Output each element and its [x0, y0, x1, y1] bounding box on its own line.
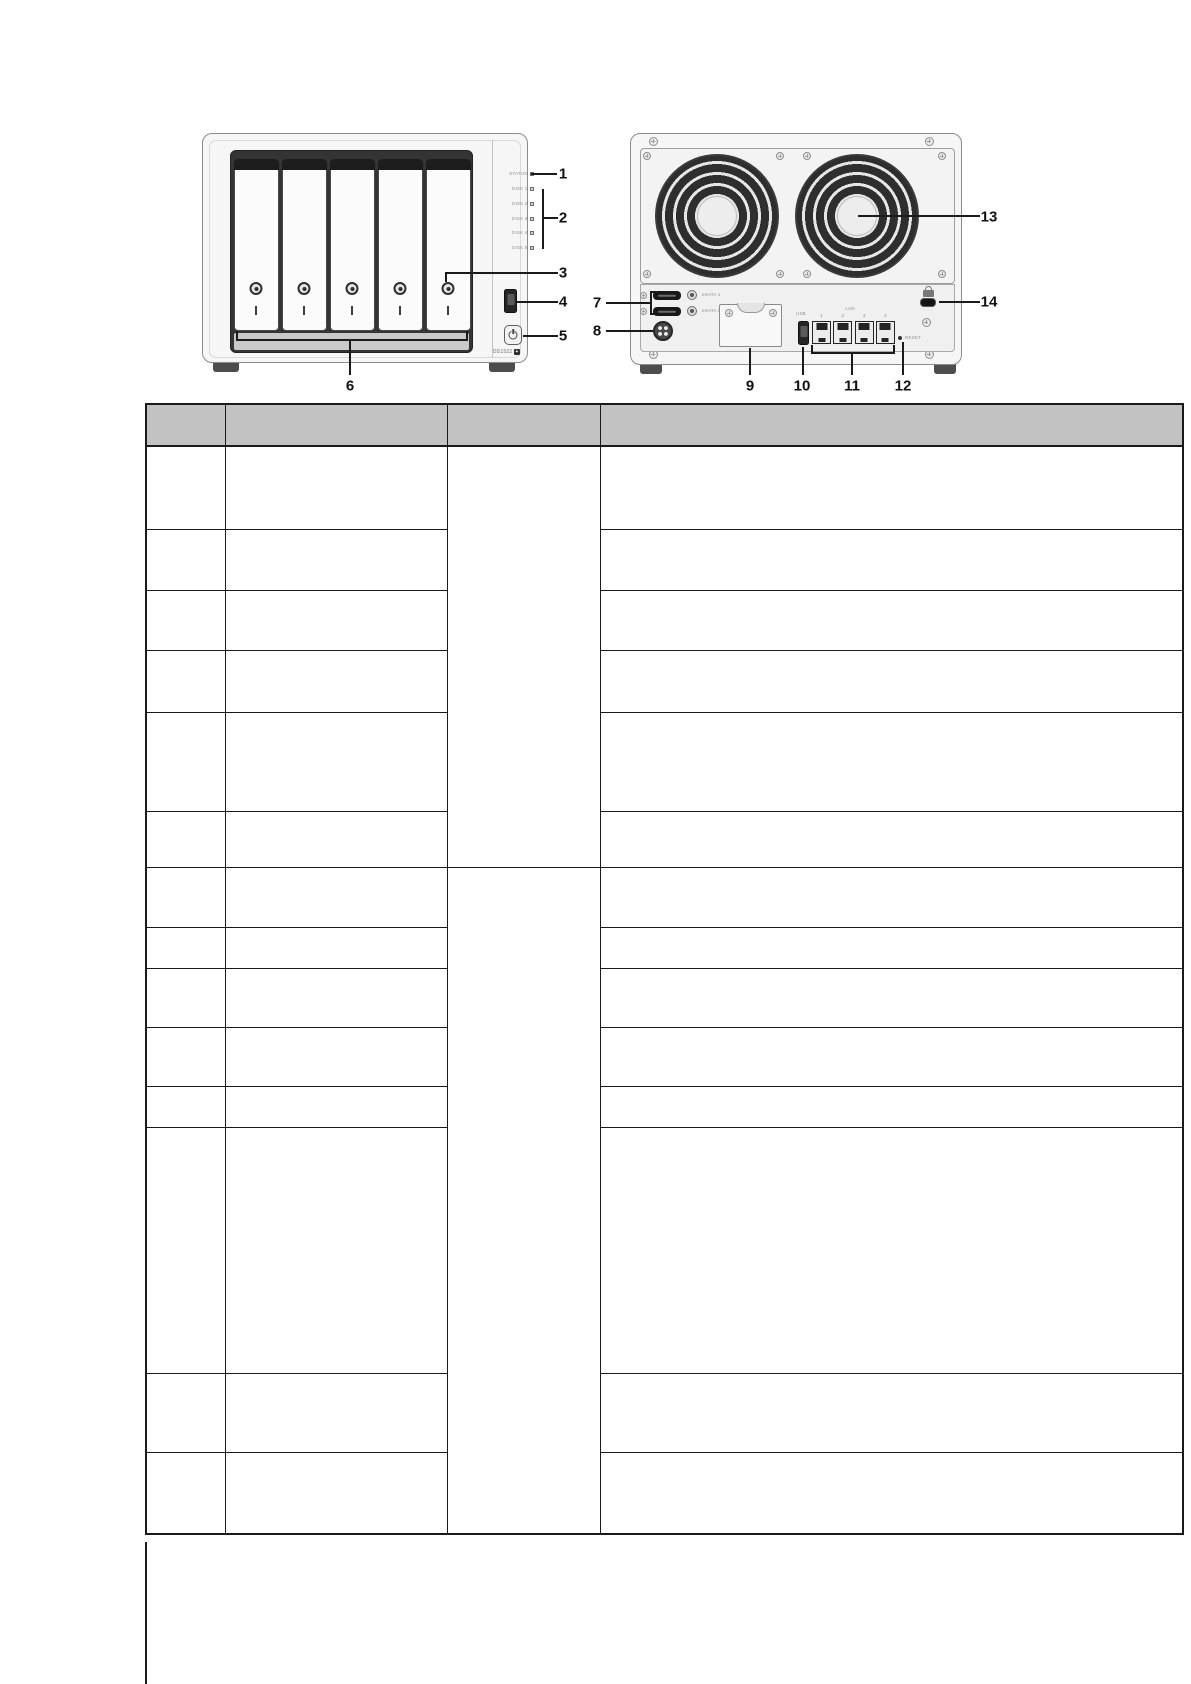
drive-tray [426, 159, 471, 331]
callout-13-leader [858, 215, 980, 217]
esata-nut [687, 290, 697, 300]
table-cell [146, 1027, 225, 1086]
tray-lock-keyhole [398, 287, 402, 291]
model-text: DS1522 [493, 350, 512, 355]
front-foot-right [489, 362, 515, 372]
disk4-led-row: DISK 4 [494, 230, 534, 236]
spec-table-header [146, 404, 1183, 446]
callout-label-2: 2 [559, 211, 567, 226]
kensington-lock-body [923, 290, 934, 297]
screw-icon [776, 152, 784, 160]
tray-led-slot [255, 306, 257, 315]
callout-label-14: 14 [981, 295, 998, 310]
led-icon [530, 246, 535, 251]
disk1-led-row: DISK 1 [494, 186, 534, 192]
table-cell [225, 927, 447, 968]
table-row [146, 590, 1183, 650]
table-cell [225, 867, 447, 927]
screw-icon [776, 270, 784, 278]
esata-port-2 [653, 307, 681, 316]
screw-icon [803, 270, 811, 278]
usb-tongue [507, 294, 514, 305]
lan-port-number: 3 [855, 314, 874, 319]
tray-lock-keyhole [254, 287, 258, 291]
callout-14-leader [939, 301, 980, 303]
callout-3-leader [445, 272, 558, 274]
table-cell [146, 446, 225, 529]
table-row [146, 1452, 1183, 1534]
led-icon [530, 217, 535, 222]
screw-icon [725, 309, 733, 317]
callout-label-10: 10 [794, 379, 811, 394]
tray-handle [330, 159, 375, 170]
esata-nut [687, 306, 697, 316]
front-foot-left [213, 362, 239, 372]
usb-tongue [800, 326, 807, 337]
callout-12-leader [902, 342, 904, 375]
table-cell [600, 590, 1183, 650]
led-label: DISK 1 [512, 187, 527, 192]
table-row [146, 811, 1183, 867]
tray-lock-icon [346, 282, 359, 295]
table-cell [600, 446, 1183, 529]
callout-4-leader [517, 301, 558, 303]
kensington-slot [920, 298, 936, 307]
lan-group-label: LAN [840, 307, 860, 312]
callout-7-bracket-end [652, 313, 656, 315]
table-cell [225, 1027, 447, 1086]
tray-lock-keyhole [446, 287, 450, 291]
front-usb-port [504, 289, 517, 313]
tray-handle [426, 159, 471, 170]
callout-label-8: 8 [593, 324, 601, 339]
led-label: STATUS [509, 172, 527, 177]
esata-slit [658, 294, 676, 297]
tray-led-slot [303, 306, 305, 315]
callout-label-3: 3 [559, 266, 567, 281]
power-button [504, 325, 522, 345]
table-cell [225, 529, 447, 590]
esata1-label: eSATA 1 [702, 293, 721, 298]
led-icon [530, 231, 535, 236]
back-usb-port [798, 321, 809, 345]
led-label: DISK 4 [512, 231, 527, 236]
power-icon-bar [512, 329, 514, 334]
tray-handle [378, 159, 423, 170]
table-header-cell [225, 404, 447, 446]
callout-2-leader [544, 217, 558, 219]
drive-tray [282, 159, 327, 331]
table-cell [600, 811, 1183, 867]
callout-label-7: 7 [593, 296, 601, 311]
lan-port-number: 4 [876, 314, 895, 319]
tray-led-slot [447, 306, 449, 315]
table-cell [600, 712, 1183, 811]
table-cell [146, 529, 225, 590]
screw-icon [769, 309, 777, 317]
callout-1-leader [531, 173, 557, 175]
table-cell [146, 1127, 225, 1373]
table-cell [146, 1373, 225, 1452]
table-cell [225, 1373, 447, 1452]
led-label: DISK 2 [512, 202, 527, 207]
table-cell-merged [447, 446, 600, 867]
table-cell [225, 650, 447, 712]
disk5-led-row: DISK 5 [494, 245, 534, 251]
callout-label-4: 4 [559, 295, 567, 310]
tray-lock-icon [394, 282, 407, 295]
callout-2-bracket [542, 189, 544, 249]
next-section-left-rule [145, 1542, 147, 1684]
table-cell [146, 1452, 225, 1534]
tray-lock-keyhole [302, 287, 306, 291]
table-cell [600, 867, 1183, 927]
callout-10-leader [802, 347, 804, 375]
esata-port-1 [653, 291, 681, 300]
table-cell [600, 1373, 1183, 1452]
reset-label: RESET [905, 336, 921, 341]
model-label: DS1522 + [493, 349, 520, 355]
esata-nut-dot [690, 293, 694, 297]
table-row [146, 927, 1183, 968]
lan-port-1 [812, 321, 831, 344]
callout-5-leader [523, 335, 558, 337]
table-cell [600, 650, 1183, 712]
callout-6-bracket [236, 339, 468, 341]
tray-led-slot [399, 306, 401, 315]
table-cell [146, 1086, 225, 1127]
disk2-led-row: DISK 2 [494, 201, 534, 207]
lan-pins [837, 323, 848, 330]
screw-icon [922, 318, 931, 327]
table-cell [225, 811, 447, 867]
table-row [146, 650, 1183, 712]
spec-table [145, 403, 1184, 1535]
fan-hub [697, 196, 737, 236]
lan-port-number: 2 [833, 314, 852, 319]
tray-handle [234, 159, 279, 170]
table-cell [146, 590, 225, 650]
bay-bottom-strip [234, 333, 469, 350]
model-plus-badge: + [514, 349, 520, 355]
lan-port-3 [855, 321, 874, 344]
lan-nub [861, 338, 868, 342]
callout-7-bracket-end [652, 291, 656, 293]
screw-icon [938, 270, 946, 278]
screw-icon [938, 152, 946, 160]
callout-6-stub [349, 341, 351, 375]
table-cell [600, 529, 1183, 590]
table-cell [146, 968, 225, 1027]
screw-icon [649, 137, 658, 146]
tray-lock-icon [250, 282, 263, 295]
table-row [146, 1027, 1183, 1086]
table-cell [600, 1027, 1183, 1086]
callout-label-13: 13 [981, 210, 998, 225]
table-cell [600, 1452, 1183, 1534]
table-cell [225, 1452, 447, 1534]
table-row [146, 1086, 1183, 1127]
screw-icon [803, 152, 811, 160]
led-label: DISK 3 [512, 217, 527, 222]
esata-nut-dot [690, 309, 694, 313]
back-foot-right [934, 364, 956, 374]
callout-6-bracket-end [236, 331, 238, 339]
screw-icon [925, 137, 934, 146]
lan-port-2 [833, 321, 852, 344]
table-cell [146, 712, 225, 811]
table-header-cell [447, 404, 600, 446]
table-cell [146, 867, 225, 927]
callout-7-bracket [650, 291, 652, 315]
table-cell [600, 927, 1183, 968]
callout-6-bracket-end [466, 331, 468, 339]
lan-pins [859, 323, 870, 330]
spec-table-body [146, 446, 1183, 1534]
table-row [146, 712, 1183, 811]
drive-tray [234, 159, 279, 331]
tray-lock-keyhole [350, 287, 354, 291]
table-cell [225, 712, 447, 811]
callout-label-1: 1 [559, 167, 567, 182]
drive-bay-area [230, 150, 473, 353]
tray-handle [282, 159, 327, 170]
callout-label-9: 9 [746, 379, 754, 394]
drive-tray [330, 159, 375, 331]
table-cell [225, 446, 447, 529]
lan-pins [816, 323, 827, 330]
table-cell [600, 968, 1183, 1027]
disk3-led-row: DISK 3 [494, 216, 534, 222]
lan-nub [839, 338, 846, 342]
table-row [146, 867, 1183, 927]
fan-icon [655, 154, 779, 278]
led-icon [530, 202, 535, 207]
lan-pins [880, 323, 891, 330]
manual-page: STATUS DISK 1 DISK 2 DISK 3 DISK 4 DISK … [0, 0, 1191, 1684]
callout-label-12: 12 [895, 379, 912, 394]
status-led-row: STATUS [494, 171, 534, 177]
screw-icon [640, 308, 647, 315]
table-cell [600, 1086, 1183, 1127]
callout-11-bracket [811, 352, 895, 354]
drive-tray [378, 159, 423, 331]
callout-9-leader [749, 348, 751, 375]
callout-7-leader [606, 302, 652, 304]
table-cell [225, 1086, 447, 1127]
screw-icon [643, 270, 651, 278]
led-icon [530, 187, 535, 192]
lan-port-number: 1 [812, 314, 831, 319]
table-cell-merged [447, 867, 600, 1534]
screw-icon [640, 292, 647, 299]
table-cell [146, 650, 225, 712]
screw-icon [643, 152, 651, 160]
table-header-cell [600, 404, 1183, 446]
table-row [146, 1127, 1183, 1373]
callout-label-11: 11 [844, 379, 860, 394]
tray-led-slot [351, 306, 353, 315]
tray-lock-icon [442, 282, 455, 295]
lan-nub [818, 338, 825, 342]
table-cell [225, 968, 447, 1027]
table-cell [146, 811, 225, 867]
led-label: DISK 5 [512, 246, 527, 251]
table-row [146, 446, 1183, 529]
callout-8-leader [606, 330, 653, 332]
table-cell [600, 1127, 1183, 1373]
table-row [146, 529, 1183, 590]
table-cell [225, 590, 447, 650]
front-panel-divider [492, 140, 493, 358]
power-inlet-port [653, 321, 673, 341]
callout-label-5: 5 [559, 329, 567, 344]
lan-nub [882, 338, 889, 342]
table-header-cell [146, 404, 225, 446]
reset-button [898, 336, 902, 340]
esata2-label: eSATA 2 [702, 309, 721, 314]
table-row [146, 1373, 1183, 1452]
esata-slit [658, 310, 676, 313]
callout-3-stub [445, 274, 447, 282]
callout-label-6: 6 [346, 379, 354, 394]
tray-lock-icon [298, 282, 311, 295]
lan-port-4 [876, 321, 895, 344]
callout-11-stub [851, 354, 853, 375]
table-cell [146, 927, 225, 968]
usb-label: USB [796, 312, 806, 317]
table-row [146, 968, 1183, 1027]
back-foot-left [640, 364, 662, 374]
table-cell [225, 1127, 447, 1373]
